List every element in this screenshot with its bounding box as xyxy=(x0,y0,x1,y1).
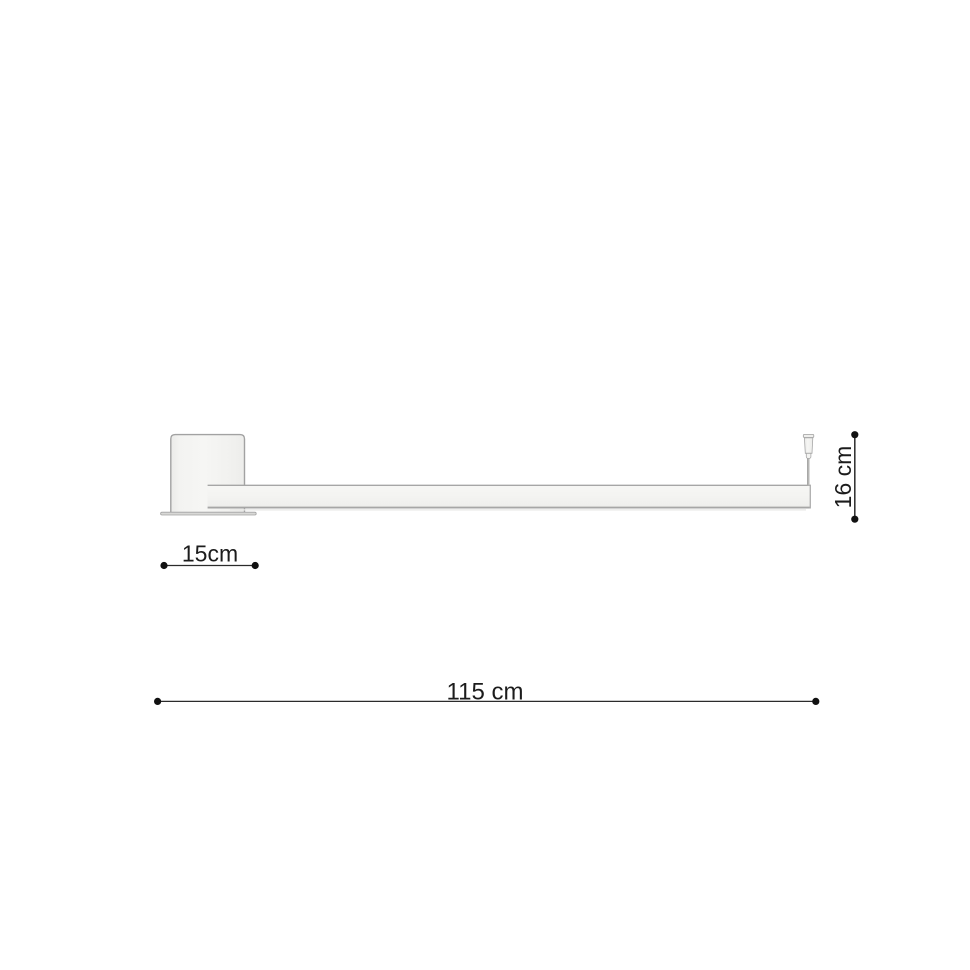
svg-text:15cm: 15cm xyxy=(182,541,238,567)
svg-text:115 cm: 115 cm xyxy=(447,678,524,705)
svg-text:16 cm: 16 cm xyxy=(830,446,856,509)
